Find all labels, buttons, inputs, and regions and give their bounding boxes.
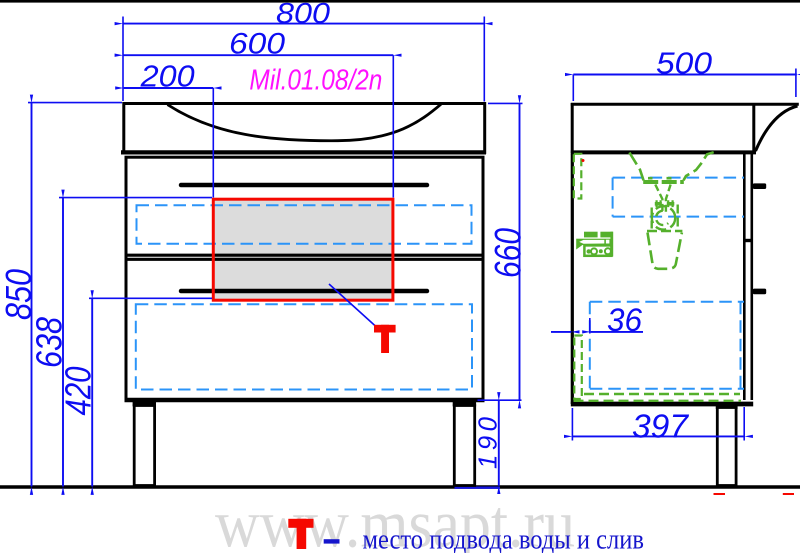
svg-text:800: 800 bbox=[276, 0, 330, 30]
svg-text:397: 397 bbox=[632, 408, 690, 445]
svg-text:420: 420 bbox=[58, 367, 99, 416]
svg-text:600: 600 bbox=[229, 28, 286, 61]
svg-text:Mil.01.08/2n: Mil.01.08/2n bbox=[249, 65, 382, 97]
svg-text:200: 200 bbox=[140, 60, 195, 94]
svg-text:место подвода воды и слив: место подвода воды и слив bbox=[363, 524, 645, 553]
svg-text:660: 660 bbox=[488, 228, 529, 278]
svg-text:850: 850 bbox=[0, 269, 39, 320]
svg-text:500: 500 bbox=[656, 46, 712, 81]
svg-text:36: 36 bbox=[607, 302, 642, 338]
svg-text:638: 638 bbox=[29, 317, 70, 368]
svg-text:190: 190 bbox=[473, 416, 503, 469]
